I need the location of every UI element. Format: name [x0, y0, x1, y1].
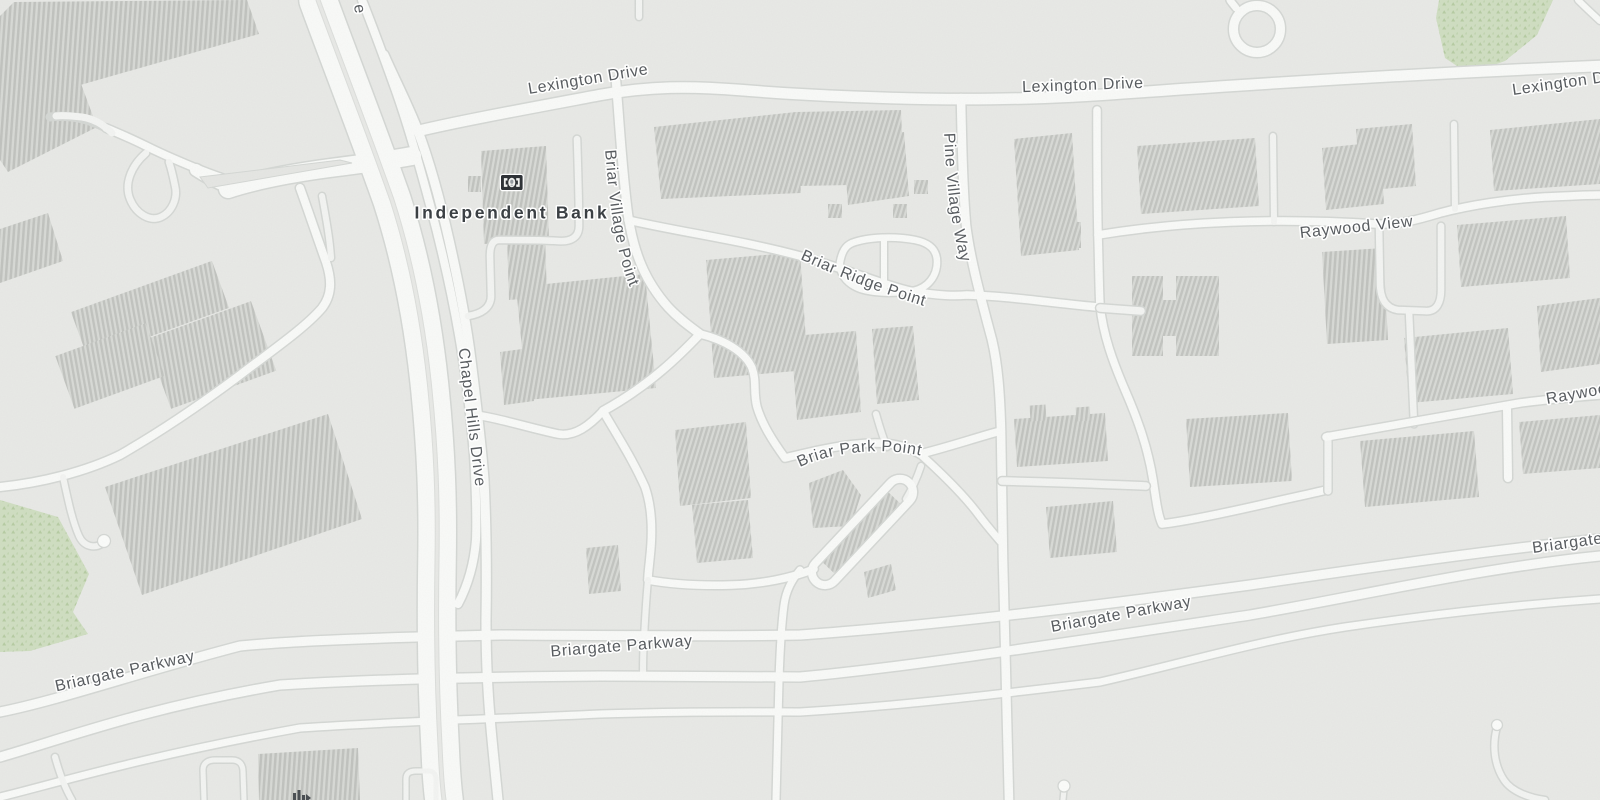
svg-text:Independent Bank: Independent Bank [415, 203, 610, 223]
